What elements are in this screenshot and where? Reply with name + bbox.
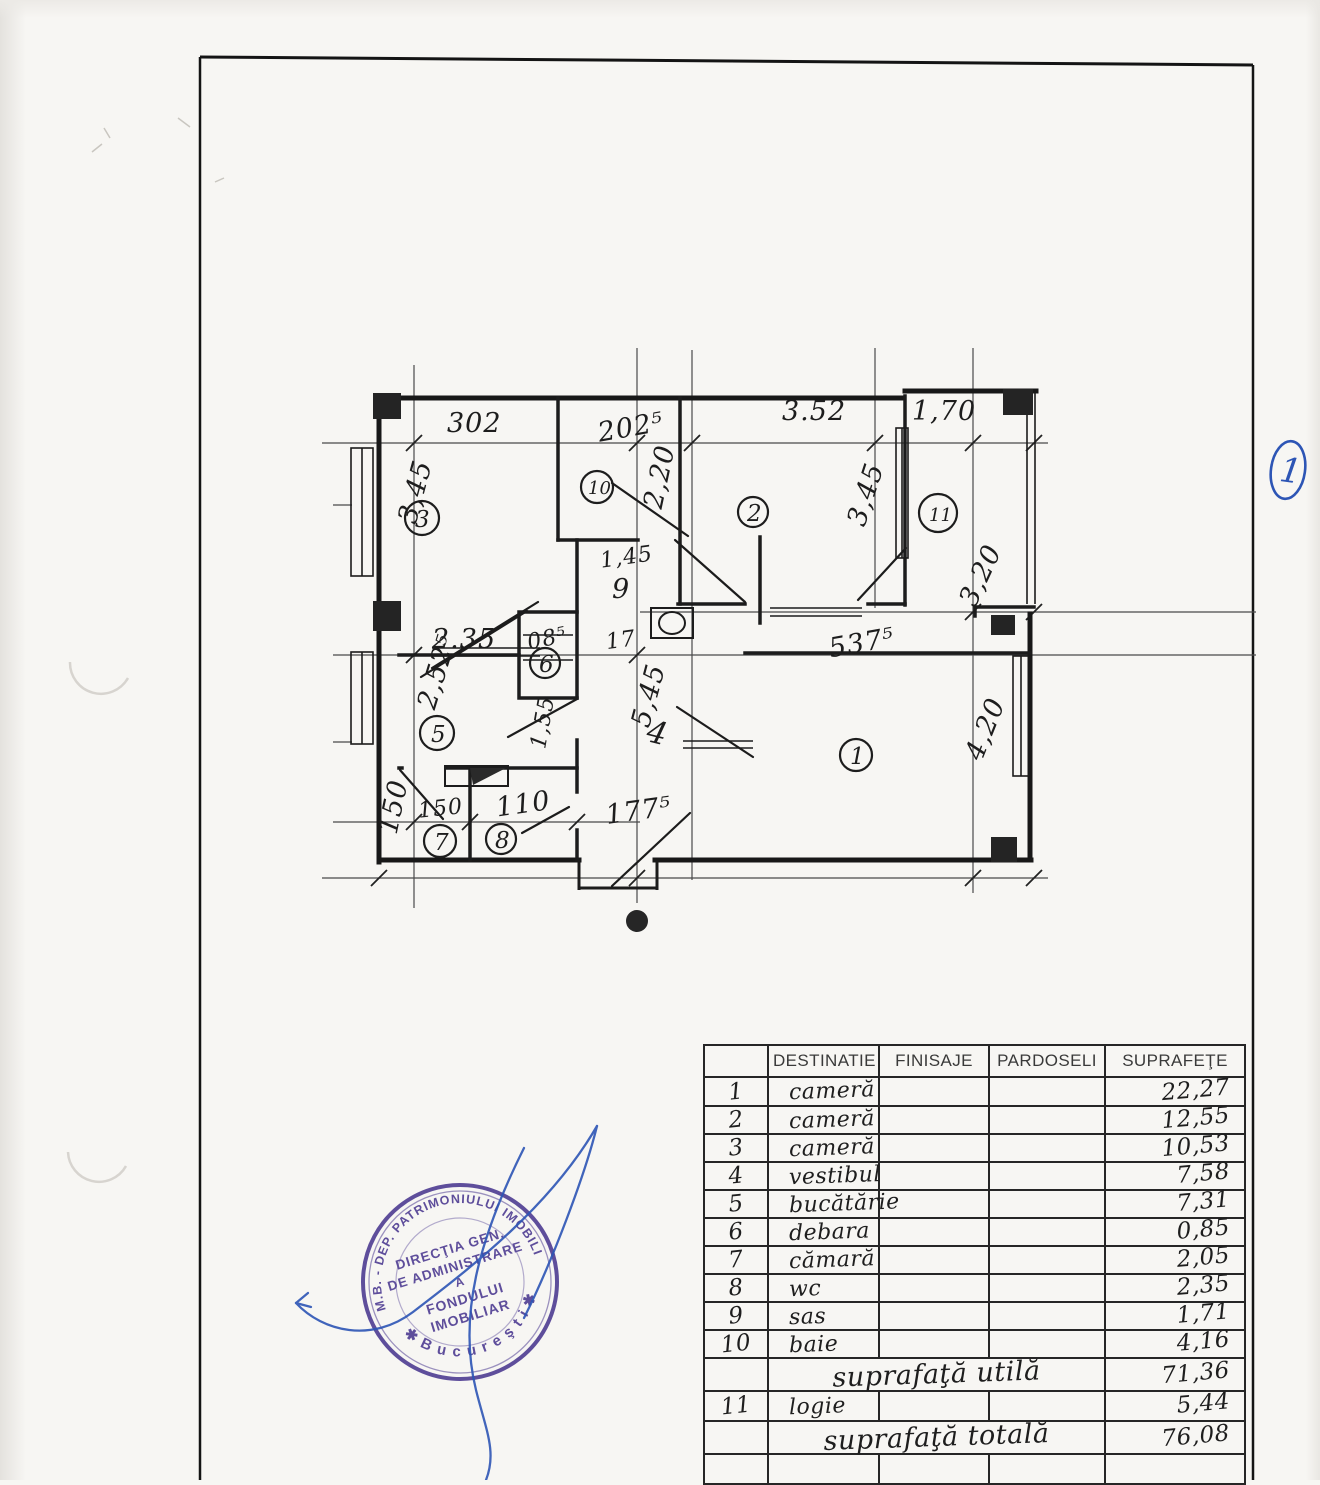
dim-352: 3.52 <box>782 396 846 427</box>
dim-145: 1,45 <box>599 542 655 574</box>
row-destination: bucătărie <box>773 1190 875 1219</box>
table-row: 10 baie 4,16 <box>704 1330 1245 1358</box>
table-row: 8 wc 2,35 <box>704 1274 1245 1302</box>
summary-value-utila: 71,36 <box>1109 1356 1241 1393</box>
dim-320: 3,20 <box>953 540 1008 611</box>
row-number: 5 <box>708 1188 764 1220</box>
row-number: 8 <box>708 1272 764 1304</box>
table-row: 3 cameră 10,53 <box>704 1134 1245 1162</box>
dim-220: 2,20 <box>638 442 682 512</box>
room-number-2: 2 <box>746 501 762 527</box>
row-number: 6 <box>708 1216 764 1248</box>
row-destination: baie <box>773 1330 875 1359</box>
row-number: 11 <box>708 1390 764 1422</box>
row-number: 2 <box>708 1104 764 1136</box>
row-number: 10 <box>708 1328 764 1360</box>
row-area: 5,44 <box>1109 1387 1241 1424</box>
table-row: 1 cameră 22,27 <box>704 1077 1245 1106</box>
row-destination: cameră <box>773 1106 875 1135</box>
table-row: 9 sas 1,71 <box>704 1302 1245 1330</box>
row-number: 9 <box>708 1300 764 1332</box>
row-destination: vestibul <box>773 1162 875 1191</box>
dim-302: 302 <box>447 408 502 439</box>
header-cell-finisaje: FINISAJE <box>879 1045 989 1077</box>
dim-5375: 537⁵ <box>826 622 897 664</box>
room-number-1: 1 <box>850 744 865 770</box>
scanned-floor-plan-document: { "page": { "mark": "1" }, "plan": { "di… <box>0 0 1320 1480</box>
row-destination: wc <box>773 1274 875 1303</box>
dim-345-right: 3,45 <box>841 459 890 530</box>
dim-150: 150 <box>417 794 464 824</box>
summary-value-totala: 76,08 <box>1109 1419 1241 1456</box>
punch-hole <box>68 662 128 1182</box>
axis-end-dot <box>626 910 648 932</box>
room-number-5: 5 <box>431 722 446 748</box>
table-row: 5 bucătărie 7,31 <box>704 1190 1245 1218</box>
row-destination: cameră <box>773 1134 875 1163</box>
pencil-smudges <box>92 118 224 182</box>
dim-085: 08⁵ <box>525 623 569 656</box>
summary-label-totala: suprafaţă totală <box>773 1416 1101 1458</box>
table-row-logie: 11 logie 5,44 <box>704 1391 1245 1421</box>
header-cell-number <box>704 1045 768 1077</box>
summary-label-utila: suprafaţă utilă <box>773 1353 1101 1395</box>
room-number-11: 11 <box>929 505 952 526</box>
table-row: 7 cămară 2,05 <box>704 1246 1245 1274</box>
room-number-10: 10 <box>588 478 611 499</box>
entrance-threshold <box>579 860 657 890</box>
row-number: 4 <box>708 1160 764 1192</box>
dim-170: 1,70 <box>912 396 976 427</box>
apartment-areas-table: DESTINATIE FINISAJE PARDOSELI SUPRAFEŢE … <box>703 1044 1246 1485</box>
dim-110: 110 <box>494 785 552 823</box>
dim-420: 4,20 <box>959 694 1012 766</box>
dim-155: 1,55 <box>526 694 560 751</box>
page-mark: 1 <box>1267 439 1309 501</box>
header-cell-suprafete: SUPRAFEŢE <box>1105 1045 1245 1077</box>
row-number: 7 <box>708 1244 764 1276</box>
table-row: 6 debara 0,85 <box>704 1218 1245 1246</box>
room-label-9-sas: 9 <box>612 574 630 605</box>
header-cell-destinatie: DESTINATIE <box>768 1045 879 1077</box>
table-row-suprafata-totala: suprafaţă totală 76,08 <box>704 1421 1245 1454</box>
room-number-7: 7 <box>434 830 449 856</box>
row-number: 3 <box>708 1132 764 1164</box>
header-cell-pardoseli: PARDOSELI <box>989 1045 1105 1077</box>
table-row: 2 cameră 12,55 <box>704 1106 1245 1134</box>
room-number-6: 6 <box>539 652 554 678</box>
row-destination: debara <box>773 1218 875 1247</box>
dim-17: 17 <box>604 626 637 655</box>
row-number: 1 <box>708 1076 764 1108</box>
table-header-row: DESTINATIE FINISAJE PARDOSELI SUPRAFEŢE <box>704 1045 1245 1077</box>
row-destination: sas <box>773 1302 875 1331</box>
row-destination: cameră <box>773 1077 875 1106</box>
table-row: 4 vestibul 7,58 <box>704 1162 1245 1190</box>
dim-1775: 177⁵ <box>604 791 674 831</box>
row-destination: logie <box>773 1392 875 1421</box>
dim-2525: 2,52⁵ <box>411 631 463 714</box>
table-row-suprafata-utila: suprafaţă utilă 71,36 <box>704 1358 1245 1391</box>
room-number-8: 8 <box>495 828 510 854</box>
room-number-3: 3 <box>415 507 430 533</box>
row-destination: cămară <box>773 1246 875 1275</box>
